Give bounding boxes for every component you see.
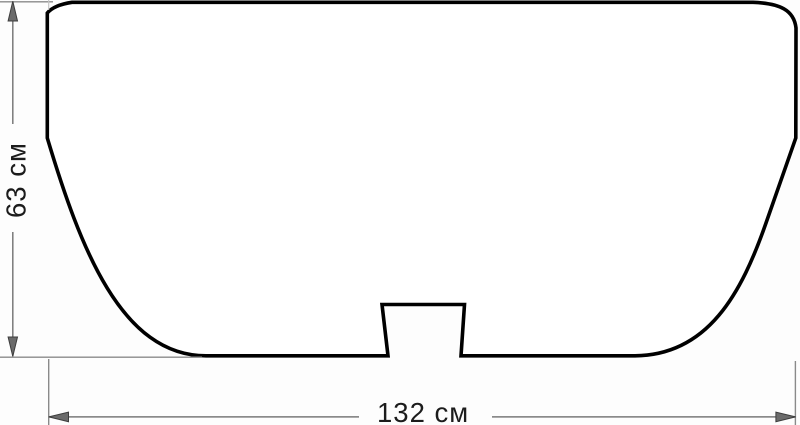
svg-text:132 см: 132 см xyxy=(377,397,469,425)
svg-text:63 см: 63 см xyxy=(1,142,32,218)
